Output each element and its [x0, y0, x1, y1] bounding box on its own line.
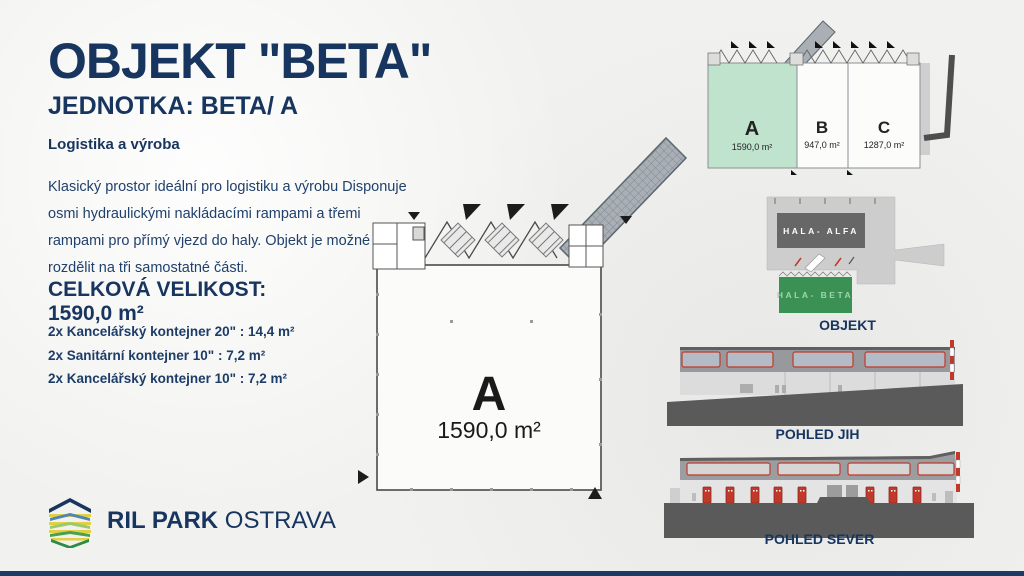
overview-unit-a-area: 1590,0 m²	[732, 142, 773, 152]
container-block-right	[569, 225, 603, 267]
mini-sawtooth-left	[713, 50, 777, 63]
total-size-heading: CELKOVÁ VELIKOST:	[48, 278, 266, 302]
north-striped-pole	[956, 452, 960, 492]
overview-unit-a-label: A	[745, 118, 759, 140]
spec-line-office-20: 2x Kancelářský kontejner 20" : 14,4 m²	[48, 324, 295, 339]
road-strip	[920, 63, 930, 155]
total-size-value: 1590,0 m²	[48, 302, 144, 326]
elevation-south-caption: POHLED JIH	[665, 426, 970, 442]
spec-line-sanitary-10: 2x Sanitární kontejner 10" : 7,2 m²	[48, 348, 265, 363]
page-subtitle: JEDNOTKA: BETA/ A	[48, 92, 298, 121]
site-plan: HALA- ALFA HALA- BETA	[745, 192, 950, 327]
container-block-left	[373, 223, 425, 269]
brand-logo: RIL PARK OSTRAVA	[46, 494, 336, 548]
elevation-north-caption: POHLED SEVER	[662, 531, 977, 547]
page-title: OBJEKT "BETA"	[48, 32, 432, 90]
overview-unit-b-area: 947,0 m²	[804, 140, 840, 150]
overview-unit-c-label: C	[878, 118, 890, 137]
hala-beta-sawtooth	[779, 272, 851, 276]
site-plan-caption: OBJEKT	[745, 317, 950, 333]
layered-hexagon-icon	[46, 494, 94, 548]
unit-c-area	[848, 63, 920, 168]
floorplan-unit-a: A 1590,0 m²	[350, 108, 690, 508]
overview-unit-c-area: 1287,0 m²	[864, 140, 905, 150]
footer-bar	[0, 571, 1024, 576]
south-striped-pole	[950, 340, 954, 380]
hala-alfa-label: HALA- ALFA	[783, 226, 859, 236]
hala-beta-label: HALA- BETA	[777, 290, 853, 300]
unit-a-area	[708, 63, 797, 168]
brand-name-light: OSTRAVA	[225, 507, 336, 534]
north-side-block	[670, 488, 680, 503]
elevation-south	[665, 338, 970, 433]
brand-name-bold: RIL PARK	[107, 507, 218, 534]
units-overview-plan: A 1590,0 m² B 947,0 m² C 1287,0 m²	[695, 15, 960, 180]
unit-b-area	[797, 63, 848, 168]
category-label: Logistika a výroba	[48, 136, 180, 153]
dock-leaves	[441, 223, 563, 257]
unit-area: 1590,0 m²	[437, 417, 541, 443]
elevation-north	[662, 450, 977, 540]
unit-label: A	[472, 368, 507, 421]
brochure-page: { "header": { "title": "OBJEKT \"BETA\""…	[0, 0, 1024, 576]
overview-unit-b-label: B	[816, 118, 828, 137]
brand-name: RIL PARK OSTRAVA	[107, 507, 336, 535]
spec-line-office-10: 2x Kancelářský kontejner 10" : 7,2 m²	[48, 371, 287, 386]
